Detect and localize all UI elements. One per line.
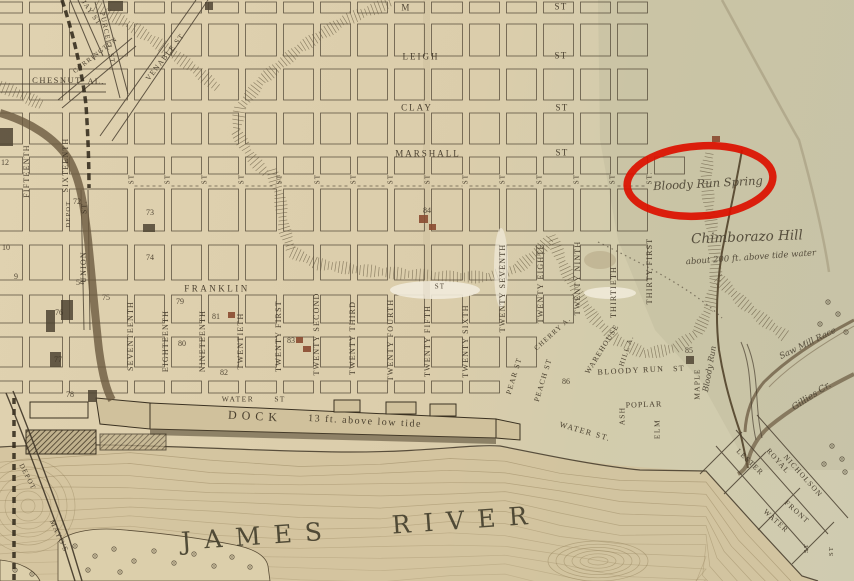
paper-fold-line — [423, 0, 430, 300]
street-grid — [0, 2, 685, 393]
map-canvas: MSTLEIGHSTCLAYSTMARSHALLSTFRANKLINSTWATE… — [0, 0, 854, 581]
diagonal-streets-nw — [0, 0, 208, 141]
dock — [26, 398, 520, 454]
